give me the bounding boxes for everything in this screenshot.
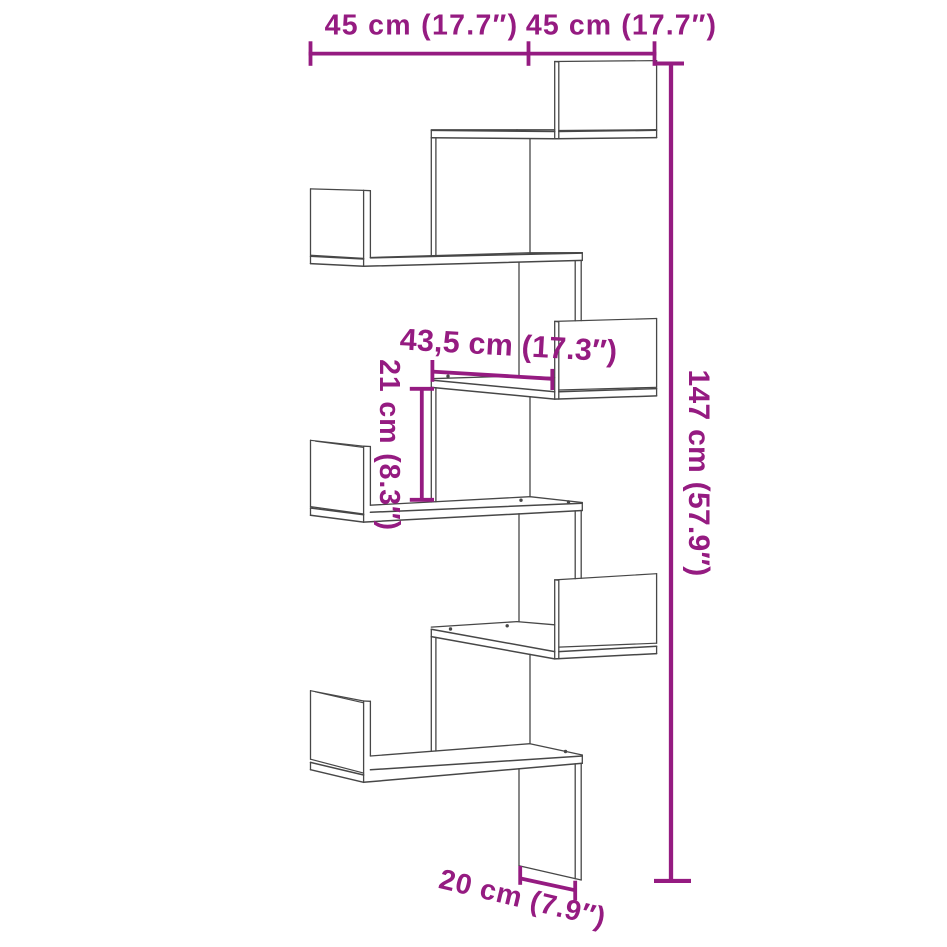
svg-text:45 cm (17.7″): 45 cm (17.7″) [526,10,717,42]
svg-text:21 cm (8.3″): 21 cm (8.3″) [373,359,405,531]
svg-text:147 cm (57.9″): 147 cm (57.9″) [682,369,715,576]
svg-text:45 cm (17.7″): 45 cm (17.7″) [325,10,519,42]
